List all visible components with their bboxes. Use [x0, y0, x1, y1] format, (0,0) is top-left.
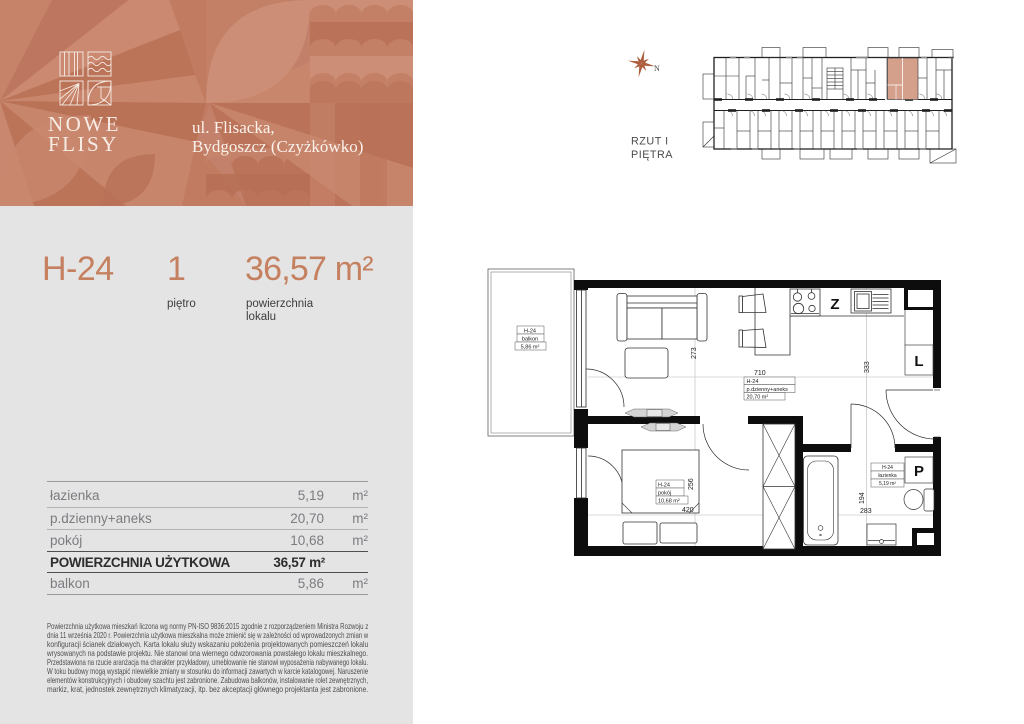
- svg-text:Z: Z: [830, 296, 839, 313]
- svg-text:H-24: H-24: [882, 465, 893, 471]
- svg-text:H-24: H-24: [524, 329, 536, 335]
- svg-text:H-24: H-24: [658, 483, 670, 489]
- svg-text:333: 333: [864, 361, 871, 373]
- svg-text:pokój: pokój: [658, 491, 671, 497]
- svg-text:256: 256: [688, 478, 695, 490]
- svg-text:5,19 m²: 5,19 m²: [879, 481, 896, 487]
- svg-text:p.dzienny+aneks: p.dzienny+aneks: [747, 387, 789, 393]
- svg-text:P: P: [914, 463, 924, 480]
- svg-text:5,86 m²: 5,86 m²: [521, 345, 540, 351]
- svg-text:20,70 m²: 20,70 m²: [747, 395, 769, 401]
- svg-text:PIĘTRA: PIĘTRA: [631, 149, 673, 161]
- svg-text:710: 710: [754, 370, 766, 377]
- svg-text:L: L: [914, 353, 923, 370]
- svg-text:RZUT I: RZUT I: [631, 136, 669, 148]
- svg-text:420: 420: [682, 507, 694, 514]
- svg-text:łazienka: łazienka: [878, 473, 897, 479]
- svg-text:273: 273: [691, 347, 698, 359]
- svg-text:H-24: H-24: [747, 379, 759, 385]
- svg-text:N: N: [654, 64, 660, 73]
- svg-text:194: 194: [859, 492, 866, 504]
- svg-text:283: 283: [860, 508, 872, 515]
- svg-text:balkon: balkon: [522, 337, 538, 343]
- svg-text:10,68 m²: 10,68 m²: [658, 499, 680, 505]
